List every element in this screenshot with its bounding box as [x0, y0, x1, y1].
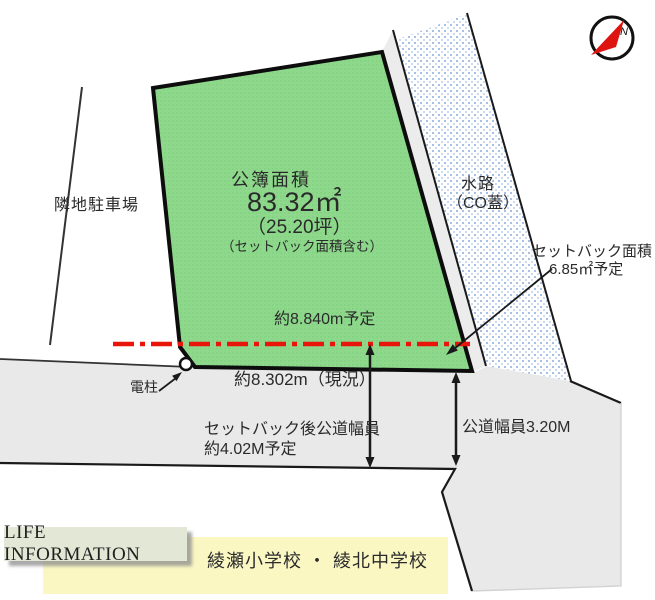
waterway-label-line1: 水路 [461, 176, 495, 194]
utility-pole-marker [180, 358, 192, 370]
pole-label: 電柱 [130, 380, 158, 395]
schools-label: 綾瀬小学校 ・ 綾北中学校 [207, 552, 428, 572]
parking-boundary-line [50, 87, 82, 345]
road-after-setback-label-line1: セットバック後公道幅員 [204, 421, 380, 439]
setback-area-label-line1: セットバック面積 [532, 244, 652, 261]
site-plan-canvas: N [0, 0, 655, 600]
parcel-area-tsubo: （25.20坪） [247, 218, 352, 239]
waterway-label-line2: （CO蓋） [447, 195, 519, 213]
parcel-area-value: 83.32㎡ [247, 188, 342, 218]
road-width-label: 公道幅員3.20M [462, 419, 570, 437]
frontage-planned-label: 約8.840m予定 [274, 311, 375, 329]
compass-north-label: N [620, 26, 628, 38]
road-after-setback-label-line2: 約4.02M予定 [204, 441, 296, 459]
site-plan-diagram: N 隣地駐車場 公簿面積 83.32㎡ （25.20坪） （セットバック面積含む… [0, 0, 655, 600]
parcel-area-note: （セットバック面積含む） [221, 240, 383, 255]
parking-label: 隣地駐車場 [54, 197, 139, 215]
setback-area-label-line2: 6.85㎡予定 [549, 262, 623, 279]
north-compass: N [591, 17, 633, 59]
frontage-current-label: 約8.302m（現況） [234, 371, 376, 390]
life-information-box: LIFE INFORMATION [4, 527, 187, 561]
